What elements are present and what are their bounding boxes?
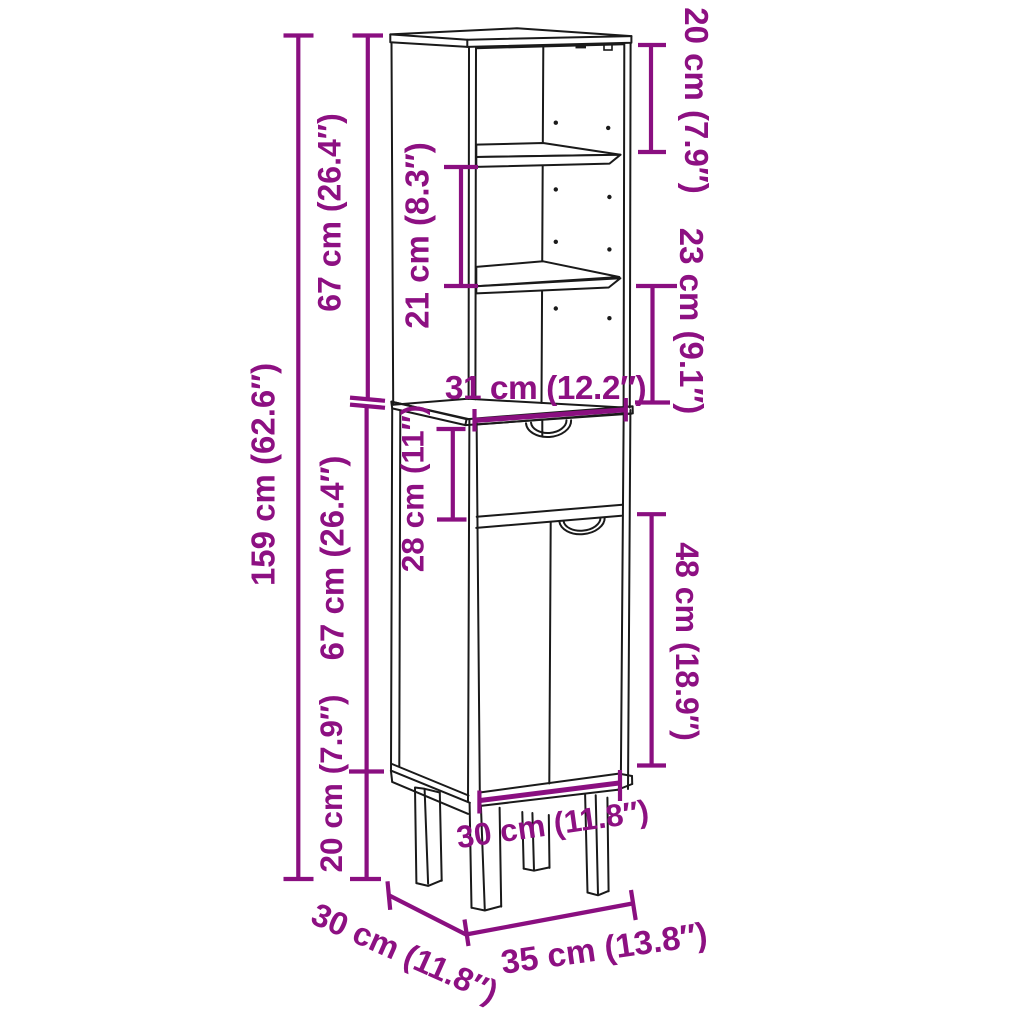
svg-text:23 cm (9.1″): 23 cm (9.1″) bbox=[673, 228, 710, 414]
svg-text:31 cm (12.2″): 31 cm (12.2″) bbox=[445, 370, 646, 407]
svg-text:67 cm (26.4″): 67 cm (26.4″) bbox=[313, 456, 350, 661]
svg-text:48 cm (18.9″): 48 cm (18.9″) bbox=[669, 542, 705, 741]
svg-text:20 cm (7.9″): 20 cm (7.9″) bbox=[313, 695, 349, 873]
svg-text:159 cm (62.6″): 159 cm (62.6″) bbox=[244, 363, 281, 586]
svg-text:21 cm (8.3″): 21 cm (8.3″) bbox=[398, 142, 435, 328]
svg-text:20 cm (7.9″): 20 cm (7.9″) bbox=[678, 7, 715, 193]
svg-text:28 cm (11″): 28 cm (11″) bbox=[394, 405, 430, 572]
svg-text:67 cm (26.4″): 67 cm (26.4″) bbox=[312, 113, 348, 312]
